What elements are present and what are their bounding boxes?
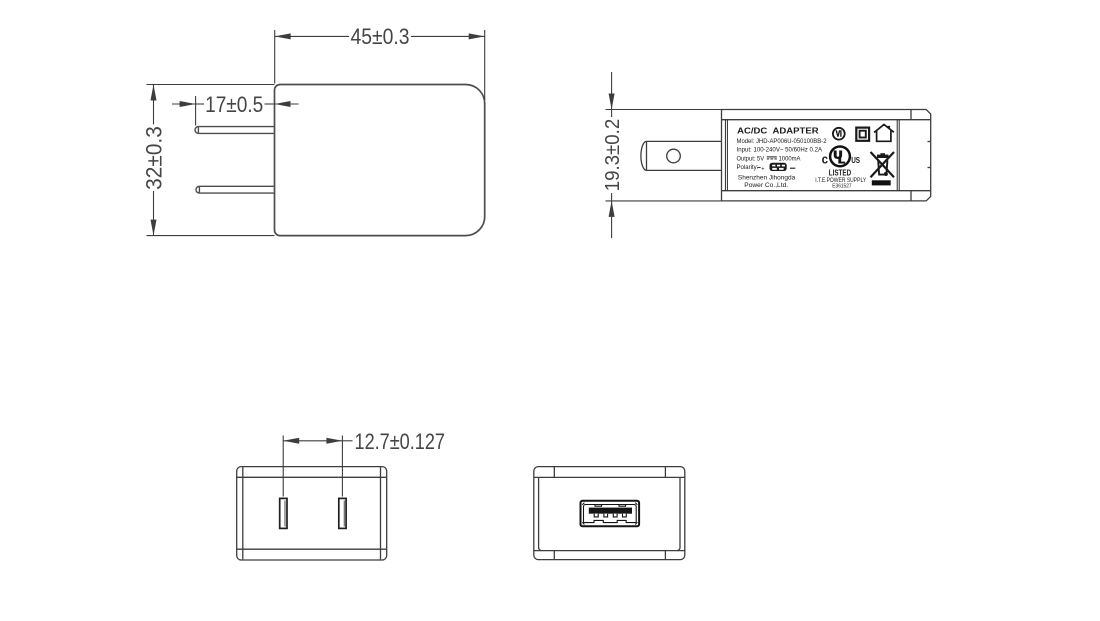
svg-text:Input: 100-240V~ 50/60Hz 0.2: Input: 100-240V~ 50/60Hz 0.2A — [737, 147, 823, 154]
svg-text:12.7±0.127: 12.7±0.127 — [355, 429, 446, 454]
svg-text:L: L — [838, 155, 845, 165]
svg-text:US: US — [851, 155, 860, 165]
svg-text:17±0.5: 17±0.5 — [205, 92, 263, 117]
svg-text:Shenzhen Jihongda: Shenzhen Jihongda — [738, 174, 796, 181]
svg-text:19.3±0.2: 19.3±0.2 — [602, 119, 624, 192]
svg-text:AC/DC ADAPTER: AC/DC ADAPTER — [737, 126, 819, 136]
svg-text:Power Co.,Ltd.: Power Co.,Ltd. — [744, 182, 788, 189]
svg-text:LISTED: LISTED — [829, 167, 851, 177]
svg-text:Output: 5V: Output: 5V — [737, 155, 765, 162]
svg-text:Model: JHD-AP006U-050100BB-2: Model: JHD-AP006U-050100BB-2 — [737, 138, 827, 145]
svg-text:E361527: E361527 — [832, 183, 851, 189]
svg-text:32±0.3: 32±0.3 — [141, 126, 166, 190]
svg-text:45±0.3: 45±0.3 — [351, 24, 410, 49]
svg-text:1000mA: 1000mA — [779, 155, 802, 162]
svg-text:Polarity:: Polarity: — [737, 164, 759, 171]
svg-text:c: c — [822, 151, 828, 166]
svg-text:+: + — [761, 166, 764, 172]
svg-text:VI: VI — [836, 130, 842, 139]
